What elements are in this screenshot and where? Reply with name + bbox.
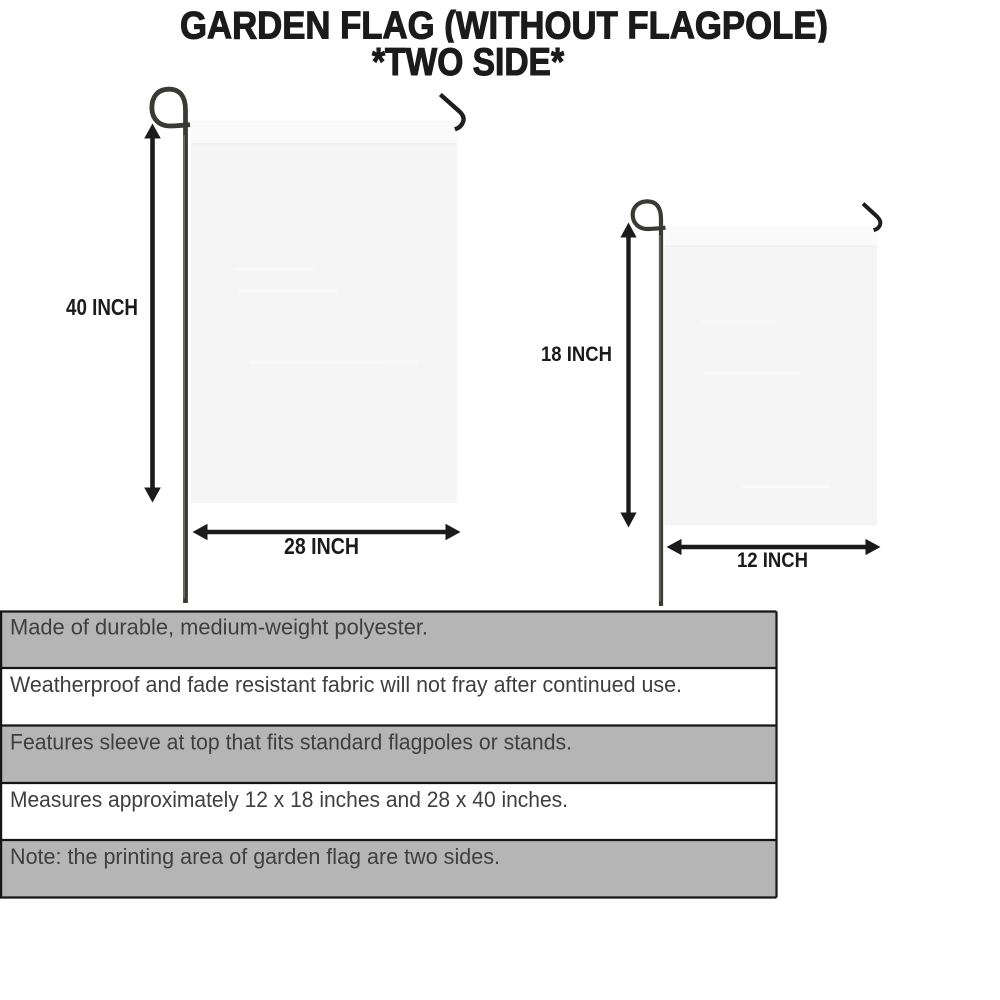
svg-text:Features sleeve at top that fi: Features sleeve at top that fits standar…	[10, 730, 572, 755]
svg-text:Note: the printing area of gar: Note: the printing area of garden flag a…	[10, 844, 500, 869]
svg-text:12 INCH: 12 INCH	[737, 548, 808, 572]
svg-text:28 INCH: 28 INCH	[284, 533, 359, 559]
svg-text:Made of durable, medium-weight: Made of durable, medium-weight polyester…	[10, 615, 428, 640]
svg-text:Measures approximately 12 x 18: Measures approximately 12 x 18 inches an…	[10, 787, 568, 812]
svg-text:40 INCH: 40 INCH	[66, 294, 138, 320]
svg-text:*TWO SIDE*: *TWO SIDE*	[372, 41, 564, 84]
svg-text:Weatherproof and fade resistan: Weatherproof and fade resistant fabric w…	[10, 672, 682, 697]
svg-text:18 INCH: 18 INCH	[541, 342, 612, 366]
